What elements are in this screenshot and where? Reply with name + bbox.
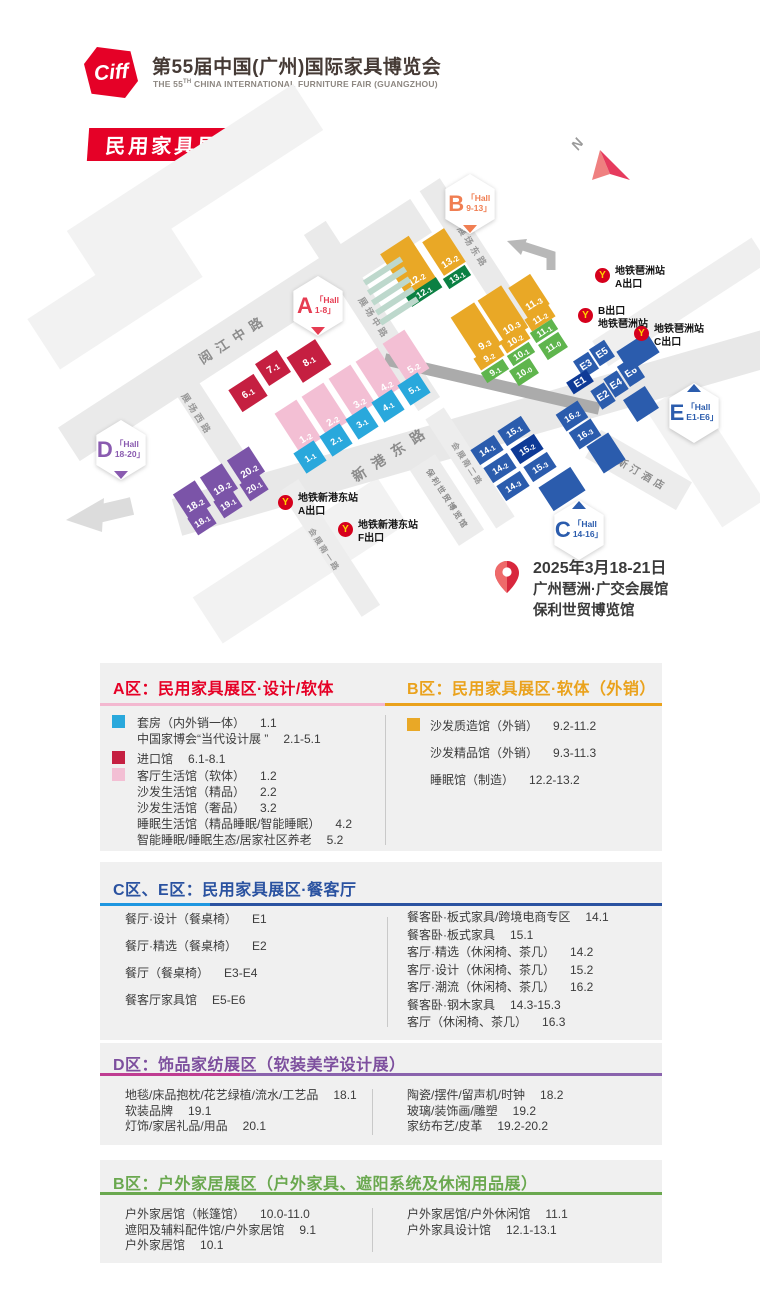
section-d-title: D区：饰品家纺展区（软装美学设计展） <box>113 1051 406 1075</box>
legend-card-outdoor: B区：户外家居展区（户外家具、遮阳系统及休闲用品展） 户外家居馆（帐篷馆）10.… <box>100 1160 662 1263</box>
hall-badge-text: 「HallE1-E6」 <box>686 403 718 423</box>
legend-item: 遮阳及辅料配件馆/户外家居馆9.1 <box>100 1221 370 1237</box>
road-exit-arrow-icon <box>58 492 140 540</box>
legend-card-ce: C区、E区：民用家具展区·餐客厅 餐厅·设计（餐桌椅）E1餐厅·精选（餐桌椅）E… <box>100 862 662 1040</box>
section-b-items: 沙发质造馆（外销）9.2-11.2沙发精品馆（外销）9.3-11.3睡眠馆（制造… <box>389 717 659 798</box>
column-divider <box>372 1208 373 1252</box>
road-turn-arrow-icon <box>505 238 559 274</box>
legend-item: 睡眠馆（制造）12.2-13.2 <box>389 771 659 798</box>
section-outdoor-items-left: 户外家居馆（帐篷馆）10.0-11.0遮阳及辅料配件馆/户外家居馆9.1户外家居… <box>100 1205 370 1252</box>
metro-logo-icon: Y <box>595 268 610 283</box>
section-a-title: A区：民用家具展区·设计/软体 <box>113 675 334 699</box>
legend-item: 中国家博会“当代设计展 ”2.1-5.1 <box>100 730 385 746</box>
legend-item: 户外家居馆/户外休闲馆11.1 <box>389 1205 659 1221</box>
legend-item: 玻璃/装饰画/雕塑19.2 <box>389 1102 659 1118</box>
column-divider <box>387 917 388 1027</box>
legend-item: 客厅（休闲椅、茶几）16.3 <box>389 1013 659 1031</box>
legend-item: 餐厅·设计（餐桌椅）E1 <box>100 910 385 937</box>
hall-badge-pointer-icon <box>687 384 701 392</box>
legend-item: 餐厅·精选（餐桌椅）E2 <box>100 937 385 964</box>
legend-item: 餐客厅家具馆E5-E6 <box>100 991 385 1018</box>
legend-item: 客厅·潮流（休闲椅、茶几）16.2 <box>389 978 659 996</box>
metro-exit-marker: Y地铁琶洲站A出口 <box>595 268 610 283</box>
hall-badge-letter: C <box>555 517 571 543</box>
hall-badge-letter: A <box>297 293 313 319</box>
legend-item: 沙发生活馆（奢品）3.2 <box>100 799 385 815</box>
legend-card-d: D区：饰品家纺展区（软装美学设计展） 地毯/床品抱枕/花艺绿植/流水/工艺品18… <box>100 1043 662 1145</box>
legend-item: 客厅·设计（休闲椅、茶几）15.2 <box>389 961 659 979</box>
hall-badge-pointer-icon <box>114 471 128 479</box>
metro-exit-label: 地铁琶洲站A出口 <box>615 266 665 291</box>
section-d-underline-accent <box>100 1073 240 1076</box>
hall-badge-pointer-icon <box>463 225 477 233</box>
section-d-items-right: 陶瓷/摆件/留声机/时钟18.2玻璃/装饰画/雕塑19.2家纺布艺/皮革19.2… <box>389 1086 659 1133</box>
event-info: 2025年3月18-21日 广州琶洲·广交会展馆 保利世贸博览馆 <box>533 558 668 622</box>
hall-badge-d: D「Hall18-20」 <box>93 420 149 480</box>
hall-badge-a: A「Hall1-8」 <box>290 276 346 336</box>
hall-badge-text: 「Hall9-13」 <box>466 194 492 214</box>
hall-badge-c: C「Hall14-16」 <box>551 500 607 560</box>
event-date: 2025年3月18-21日 <box>533 558 668 580</box>
legend-swatch <box>112 768 125 781</box>
metro-exit-marker: YB出口地铁琶洲站 <box>578 308 593 323</box>
section-d-underline <box>240 1073 662 1076</box>
legend-item: 客厅生活馆（软体）1.2 <box>100 767 385 783</box>
event-venue-1: 广州琶洲·广交会展馆 <box>533 580 668 601</box>
section-ce-items-right: 餐客卧·板式家具/跨境电商专区14.1餐客卧·板式家具15.1客厅·精选（休闲椅… <box>389 908 659 1031</box>
section-b-underline <box>385 703 662 706</box>
metro-logo-icon: Y <box>578 308 593 323</box>
metro-exit-label: 地铁新港东站A出口 <box>298 493 358 518</box>
hall-badge-pointer-icon <box>572 501 586 509</box>
legend-item: 户外家具设计馆12.1-13.1 <box>389 1221 659 1237</box>
hall-badge-pointer-icon <box>311 327 325 335</box>
hall-badge-text: 「Hall1-8」 <box>315 296 339 316</box>
section-outdoor-items-right: 户外家居馆/户外休闲馆11.1户外家具设计馆12.1-13.1 <box>389 1205 659 1236</box>
hall-block-8.1[interactable]: 8.1 <box>287 339 332 383</box>
legend-item: 地毯/床品抱枕/花艺绿植/流水/工艺品18.1 <box>100 1086 370 1102</box>
hall-block-7.1[interactable]: 7.1 <box>255 350 291 386</box>
metro-exit-label: 地铁琶洲站C出口 <box>654 324 704 349</box>
section-ce-title: C区、E区：民用家具展区·餐客厅 <box>113 876 357 900</box>
legend-card-a-b: A区：民用家具展区·设计/软体 B区：民用家具展区·软体（外销） 套房（内外销一… <box>100 663 662 851</box>
section-ce-items-left: 餐厅·设计（餐桌椅）E1餐厅·精选（餐桌椅）E2餐厅（餐桌椅）E3-E4餐客厅家… <box>100 910 385 1018</box>
hall-badge-e: E「HallE1-E6」 <box>666 383 722 443</box>
legend-item: 智能睡眠/睡眠生态/居家社区养老5.2 <box>100 831 385 847</box>
legend-item: 餐客卧·板式家具15.1 <box>389 926 659 944</box>
legend-item: 餐厅（餐桌椅）E3-E4 <box>100 964 385 991</box>
map-canvas: N 2025年3月18-21日 广州琶洲·广交会展馆 保利世贸博览馆 阅江中路展… <box>0 0 760 660</box>
section-b-title: B区：民用家具展区·软体（外销） <box>407 675 656 699</box>
metro-exit-marker: Y地铁新港东站F出口 <box>338 522 353 537</box>
metro-logo-icon: Y <box>338 522 353 537</box>
legend-item: 进口馆6.1-8.1 <box>100 750 385 766</box>
column-divider <box>372 1089 373 1135</box>
hall-badge-letter: B <box>448 191 464 217</box>
north-label: N <box>568 135 587 152</box>
legend-item: 户外家居馆10.1 <box>100 1236 370 1252</box>
map-road-shape <box>67 83 323 276</box>
metro-logo-icon: Y <box>634 326 649 341</box>
legend-item: 陶瓷/摆件/留声机/时钟18.2 <box>389 1086 659 1102</box>
hall-badge-letter: E <box>670 400 685 426</box>
section-ce-underline <box>210 903 662 906</box>
hall-badge-letter: D <box>97 437 113 463</box>
legend-item: 客厅·精选（休闲椅、茶几）14.2 <box>389 943 659 961</box>
legend-item: 沙发生活馆（精品）2.2 <box>100 783 385 799</box>
legend-swatch <box>112 715 125 728</box>
section-a-underline <box>100 703 385 706</box>
legend-item: 套房（内外销一体）1.1 <box>100 714 385 730</box>
hall-badge-b: B「Hall9-13」 <box>442 174 498 234</box>
page: Ciff 第55届中国(广州)国际家具博览会 THE 55TH CHINA IN… <box>0 0 760 1291</box>
hall-badge-text: 「Hall14-16」 <box>573 520 603 540</box>
north-arrow-icon <box>588 146 634 186</box>
legend-item: 睡眠生活馆（精品睡眠/智能睡眠）4.2 <box>100 815 385 831</box>
hall-badge-text: 「Hall18-20」 <box>115 440 145 460</box>
location-pin-icon <box>494 560 520 594</box>
column-divider <box>385 715 386 845</box>
hall-block-6.1[interactable]: 6.1 <box>228 374 267 412</box>
metro-exit-label: 地铁新港东站F出口 <box>358 520 418 545</box>
legend-item: 灯饰/家居礼品/用品20.1 <box>100 1117 370 1133</box>
legend-item: 家纺布艺/皮革19.2-20.2 <box>389 1117 659 1133</box>
legend-swatch <box>407 718 420 731</box>
legend-item: 沙发质造馆（外销）9.2-11.2 <box>389 717 659 744</box>
legend-item: 户外家居馆（帐篷馆）10.0-11.0 <box>100 1205 370 1221</box>
section-outdoor-underline <box>100 1192 662 1195</box>
section-ce-underline-accent <box>100 903 210 906</box>
section-outdoor-title: B区：户外家居展区（户外家具、遮阳系统及休闲用品展） <box>113 1170 538 1194</box>
event-venue-2: 保利世贸博览馆 <box>533 601 668 622</box>
section-d-items-left: 地毯/床品抱枕/花艺绿植/流水/工艺品18.1软装品牌19.1灯饰/家居礼品/用… <box>100 1086 370 1133</box>
legend-item: 餐客卧·板式家具/跨境电商专区14.1 <box>389 908 659 926</box>
legend-swatch <box>112 751 125 764</box>
metro-logo-icon: Y <box>278 495 293 510</box>
legend-item: 餐客卧·钢木家具14.3-15.3 <box>389 996 659 1014</box>
metro-exit-marker: Y地铁新港东站A出口 <box>278 495 293 510</box>
legend-item: 软装品牌19.1 <box>100 1102 370 1118</box>
metro-exit-marker: Y地铁琶洲站C出口 <box>634 326 649 341</box>
legend-item: 沙发精品馆（外销）9.3-11.3 <box>389 744 659 771</box>
section-a-items: 套房（内外销一体）1.1中国家博会“当代设计展 ”2.1-5.1进口馆6.1-8… <box>100 714 385 848</box>
